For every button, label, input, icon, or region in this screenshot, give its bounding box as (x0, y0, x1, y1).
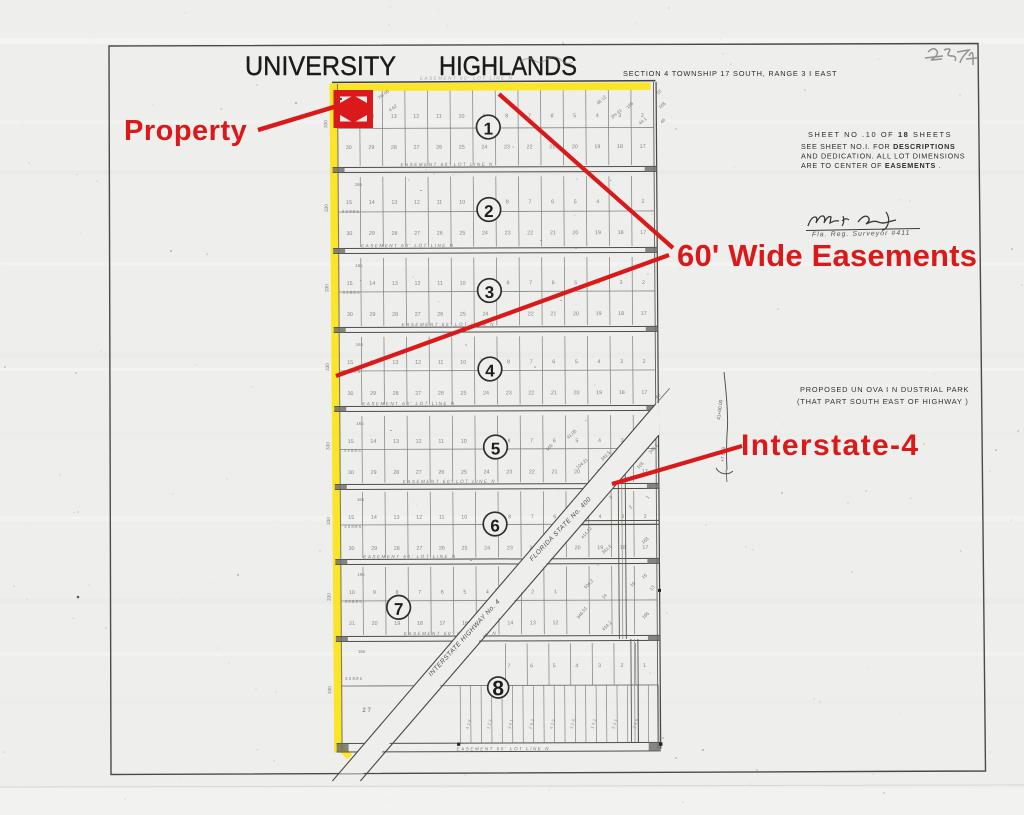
svg-text:14: 14 (369, 281, 375, 287)
svg-text:6: 6 (551, 199, 554, 205)
svg-text:11: 11 (439, 515, 445, 521)
svg-text:165: 165 (356, 342, 364, 347)
svg-text:4: 4 (596, 113, 599, 119)
svg-text:25: 25 (459, 145, 465, 151)
svg-text:20: 20 (372, 621, 378, 627)
svg-text:8: 8 (508, 514, 511, 520)
svg-text:28: 28 (394, 546, 400, 552)
svg-text:26: 26 (439, 546, 445, 552)
svg-text:11: 11 (437, 200, 443, 206)
svg-text:23: 23 (506, 469, 512, 475)
svg-text:29: 29 (371, 546, 377, 552)
svg-text:8: 8 (492, 677, 504, 700)
svg-text:13: 13 (391, 200, 397, 206)
svg-text:4: 4 (596, 199, 599, 205)
svg-text:28: 28 (393, 470, 399, 476)
svg-text:4: 4 (598, 438, 601, 444)
svg-text:3 3 8.8 5: 3 3 8.8 5 (342, 209, 360, 214)
svg-text:330: 330 (325, 442, 331, 450)
svg-text:30: 30 (346, 231, 352, 237)
svg-text:27: 27 (416, 470, 422, 476)
svg-text:12: 12 (414, 200, 420, 206)
svg-text:5: 5 (575, 359, 578, 365)
svg-text:27: 27 (416, 546, 422, 552)
svg-text:AND DEDICATION. ALL LOT DIMEN: AND DEDICATION. ALL LOT DIMENSIONS (801, 152, 965, 161)
svg-text:28: 28 (393, 391, 399, 397)
svg-text:EASEMENT 60' LOT LINE N: EASEMENT 60' LOT LINE N (420, 75, 513, 80)
svg-text:27: 27 (415, 312, 421, 318)
svg-text:28: 28 (392, 312, 398, 318)
svg-text:4: 4 (575, 663, 578, 669)
svg-text:14: 14 (369, 200, 375, 206)
svg-text:7: 7 (529, 280, 532, 286)
svg-text:10: 10 (461, 515, 467, 521)
svg-text:7: 7 (508, 663, 511, 669)
svg-text:8: 8 (507, 359, 510, 365)
svg-text:5: 5 (463, 590, 466, 596)
svg-text:EASEMENT 60' LOT LI: EASEMENT 60' LOT LINE N (361, 243, 454, 248)
svg-text:EASEMENT 60' LOT LINE: EASEMENT 60' LOT LINE N (457, 746, 550, 751)
svg-text:10: 10 (349, 590, 355, 596)
svg-text:2 7: 2 7 (362, 707, 371, 714)
svg-text:6: 6 (553, 514, 556, 520)
svg-text:9: 9 (373, 590, 376, 596)
svg-text:24: 24 (484, 546, 490, 552)
svg-text:30: 30 (347, 312, 353, 318)
svg-text:27: 27 (415, 391, 421, 397)
svg-text:29: 29 (370, 391, 376, 397)
svg-text:17: 17 (439, 621, 445, 627)
svg-text:22: 22 (529, 469, 535, 475)
svg-text:12: 12 (416, 439, 422, 445)
svg-text:12: 12 (553, 620, 559, 626)
svg-text:13: 13 (392, 360, 398, 366)
svg-text:6: 6 (552, 359, 555, 365)
svg-text:29: 29 (369, 231, 375, 237)
svg-text:330: 330 (327, 686, 333, 694)
svg-text:4: 4 (597, 359, 600, 365)
svg-text:12: 12 (413, 114, 419, 120)
svg-text:26: 26 (437, 312, 443, 318)
svg-text:29: 29 (369, 312, 375, 318)
svg-text:SEE SHEET NO.I. FOR DESCRIPT: SEE SHEET NO.I. FOR DESCRIPTIONS (801, 142, 955, 151)
svg-text:24: 24 (484, 470, 490, 476)
svg-text:3 3 8.8 5: 3 3 8.8 5 (344, 448, 362, 453)
svg-text:24: 24 (483, 391, 489, 397)
svg-text:21: 21 (349, 621, 355, 627)
svg-text:17: 17 (641, 390, 647, 396)
svg-text:17: 17 (642, 545, 648, 551)
svg-text:10: 10 (460, 281, 466, 287)
svg-text:20: 20 (573, 311, 579, 317)
svg-text:18: 18 (618, 230, 624, 236)
svg-text:10: 10 (461, 439, 467, 445)
svg-text:17: 17 (640, 144, 646, 150)
svg-text:(THAT PART SOUTH EAST OF H: (THAT PART SOUTH EAST OF HIGHWAY ) (797, 397, 969, 406)
svg-text:26: 26 (436, 145, 442, 151)
svg-text:6: 6 (530, 663, 533, 669)
svg-text:3 3 8.8 5: 3 3 8.8 5 (345, 676, 363, 681)
svg-text:6: 6 (550, 113, 553, 119)
svg-text:15: 15 (348, 439, 354, 445)
svg-text:12: 12 (416, 515, 422, 521)
svg-text:3: 3 (485, 283, 495, 302)
svg-text:19: 19 (394, 621, 400, 627)
svg-text:330: 330 (327, 593, 333, 601)
svg-text:28: 28 (391, 145, 397, 151)
svg-text:330: 330 (326, 517, 332, 525)
svg-text:5: 5 (575, 438, 578, 444)
svg-text:4: 4 (485, 361, 495, 380)
svg-text:4: 4 (598, 514, 601, 520)
svg-text:3: 3 (619, 280, 622, 286)
svg-text:3 3 8.8 5: 3 3 8.8 5 (342, 290, 360, 295)
svg-text:EASEMENT 60' LOT LI: EASEMENT 60' LOT LINE N (403, 479, 496, 484)
svg-text:18: 18 (618, 311, 624, 317)
svg-text:27: 27 (414, 231, 420, 237)
svg-text:7: 7 (528, 199, 531, 205)
svg-text:4: 4 (486, 590, 489, 596)
svg-text:23: 23 (504, 144, 510, 150)
svg-text:2: 2 (644, 514, 647, 520)
svg-text:8: 8 (508, 438, 511, 444)
svg-text:10: 10 (460, 360, 466, 366)
svg-text:26: 26 (438, 470, 444, 476)
svg-text:15: 15 (346, 200, 352, 206)
svg-text:SECTION 4 TOWNSHIP 17 SOUTH: SECTION 4 TOWNSHIP 17 SOUTH, RANGE 3 I E… (623, 69, 837, 78)
svg-text:21: 21 (551, 469, 557, 475)
svg-text:2: 2 (641, 199, 644, 205)
svg-text:5: 5 (574, 199, 577, 205)
svg-text:10: 10 (459, 200, 465, 206)
svg-text:330: 330 (324, 284, 330, 292)
svg-text:8: 8 (505, 113, 508, 119)
svg-text:7: 7 (531, 514, 534, 520)
svg-text:7: 7 (530, 359, 533, 365)
svg-text:23: 23 (507, 545, 513, 551)
svg-text:17: 17 (641, 311, 647, 317)
svg-text:26: 26 (438, 391, 444, 397)
svg-text:8: 8 (506, 280, 509, 286)
svg-text:22: 22 (528, 390, 534, 396)
svg-text:18: 18 (619, 390, 625, 396)
svg-text:1: 1 (643, 663, 646, 669)
svg-text:Interstate-4: Interstate-4 (741, 429, 920, 462)
svg-text:20: 20 (575, 545, 581, 551)
svg-text:10: 10 (458, 114, 464, 120)
svg-text:6: 6 (552, 280, 555, 286)
svg-text:13: 13 (393, 439, 399, 445)
svg-text:3 3 8.8 5: 3 3 8.8 5 (344, 524, 362, 529)
svg-text:22: 22 (528, 311, 534, 317)
svg-text:18: 18 (620, 545, 626, 551)
svg-text:ARE TO CENTER OF EASEMENTS .: ARE TO CENTER OF EASEMENTS . (801, 161, 941, 170)
svg-text:20: 20 (574, 469, 580, 475)
svg-text:19: 19 (596, 390, 602, 396)
svg-text:29: 29 (371, 470, 377, 476)
svg-text:18: 18 (417, 621, 423, 627)
svg-text:19: 19 (596, 311, 602, 317)
svg-text:5: 5 (491, 439, 501, 458)
svg-text:7: 7 (418, 590, 421, 596)
svg-text:13: 13 (391, 114, 397, 120)
svg-text:2: 2 (643, 359, 646, 365)
svg-text:28: 28 (392, 231, 398, 237)
svg-text:6: 6 (490, 516, 500, 535)
svg-text:6: 6 (553, 438, 556, 444)
svg-text:24: 24 (482, 312, 488, 318)
svg-text:7: 7 (530, 438, 533, 444)
svg-text:8: 8 (506, 199, 509, 205)
svg-text:14: 14 (370, 439, 376, 445)
svg-text:21: 21 (550, 230, 556, 236)
svg-text:11: 11 (438, 360, 444, 366)
svg-text:60' Wide Easements: 60' Wide Easements (677, 238, 977, 273)
svg-text:3 3 8.8 5: 3 3 8.8 5 (345, 599, 363, 604)
svg-text:1: 1 (554, 589, 557, 595)
svg-text:12: 12 (415, 360, 421, 366)
svg-text:20: 20 (572, 230, 578, 236)
svg-text:13: 13 (393, 515, 399, 521)
svg-text:2: 2 (642, 280, 645, 286)
svg-text:29: 29 (368, 145, 374, 151)
svg-text:25: 25 (460, 391, 466, 397)
svg-text:18: 18 (617, 144, 623, 150)
svg-text:13: 13 (392, 281, 398, 287)
svg-text:330: 330 (323, 120, 329, 128)
svg-text:21: 21 (551, 390, 557, 396)
svg-text:7: 7 (394, 600, 404, 619)
svg-text:1: 1 (483, 119, 493, 138)
svg-text:11: 11 (436, 114, 442, 120)
svg-text:5: 5 (574, 280, 577, 286)
svg-text:22: 22 (527, 230, 533, 236)
svg-text:2: 2 (484, 202, 494, 221)
svg-text:26: 26 (437, 231, 443, 237)
svg-text:20: 20 (574, 390, 580, 396)
svg-text:5: 5 (573, 113, 576, 119)
svg-text:3: 3 (621, 514, 624, 520)
svg-text:UNIVERSITY: UNIVERSITY (245, 51, 396, 81)
svg-text:25: 25 (461, 470, 467, 476)
svg-text:25: 25 (459, 231, 465, 237)
svg-text:3: 3 (620, 359, 623, 365)
svg-text:165: 165 (357, 572, 365, 577)
svg-text:23: 23 (505, 230, 511, 236)
svg-text:330: 330 (325, 363, 331, 371)
svg-text:12: 12 (414, 281, 420, 287)
svg-text:17: 17 (640, 230, 646, 236)
svg-text:19: 19 (595, 230, 601, 236)
svg-text:24: 24 (482, 231, 488, 237)
svg-text:11: 11 (437, 281, 443, 287)
svg-text:PROPOSED UN OVA I N DUSTRIA: PROPOSED UN OVA I N DUSTRIAL PARK (800, 385, 969, 394)
svg-text:14: 14 (371, 515, 377, 521)
svg-text:165: 165 (355, 182, 363, 187)
svg-text:19: 19 (594, 144, 600, 150)
svg-text:EASEMENT 60' LOT LI: EASEMENT 60' LOT LINE N (363, 554, 456, 559)
svg-text:5: 5 (553, 663, 556, 669)
svg-text:165: 165 (356, 421, 364, 426)
svg-text:11: 11 (438, 439, 444, 445)
svg-text:13: 13 (530, 620, 536, 626)
svg-text:15: 15 (347, 281, 353, 287)
svg-text:EASEMENT 60' LOT LI: EASEMENT 60' LOT LINE N (401, 162, 494, 167)
svg-text:21: 21 (550, 311, 556, 317)
svg-text:20: 20 (572, 144, 578, 150)
svg-text:165: 165 (358, 649, 366, 654)
svg-text:3: 3 (598, 663, 601, 669)
svg-text:24: 24 (481, 145, 487, 151)
svg-text:2: 2 (531, 589, 534, 595)
svg-text:EASEMENT 60' LOT LI: EASEMENT 60' LOT LINE N (362, 401, 455, 406)
svg-text:SHEET NO .10 OF 18 SHEETS: SHEET NO .10 OF 18 SHEETS (808, 130, 952, 139)
svg-text:165: 165 (357, 497, 365, 502)
svg-text:165: 165 (355, 263, 363, 268)
svg-text:30: 30 (348, 470, 354, 476)
svg-text:25: 25 (460, 312, 466, 318)
svg-text:23: 23 (506, 390, 512, 396)
svg-text:30: 30 (347, 391, 353, 397)
svg-text:30: 30 (349, 546, 355, 552)
svg-text:30: 30 (346, 145, 352, 151)
svg-text:22: 22 (527, 144, 533, 150)
svg-text:15: 15 (348, 515, 354, 521)
svg-text:Property: Property (124, 115, 247, 147)
svg-text:14: 14 (507, 620, 513, 626)
svg-text:330: 330 (324, 204, 330, 212)
svg-text:2: 2 (621, 663, 624, 669)
svg-text:25: 25 (462, 546, 468, 552)
svg-text:15: 15 (347, 360, 353, 366)
svg-text:6: 6 (441, 590, 444, 596)
svg-text:27: 27 (414, 145, 420, 151)
